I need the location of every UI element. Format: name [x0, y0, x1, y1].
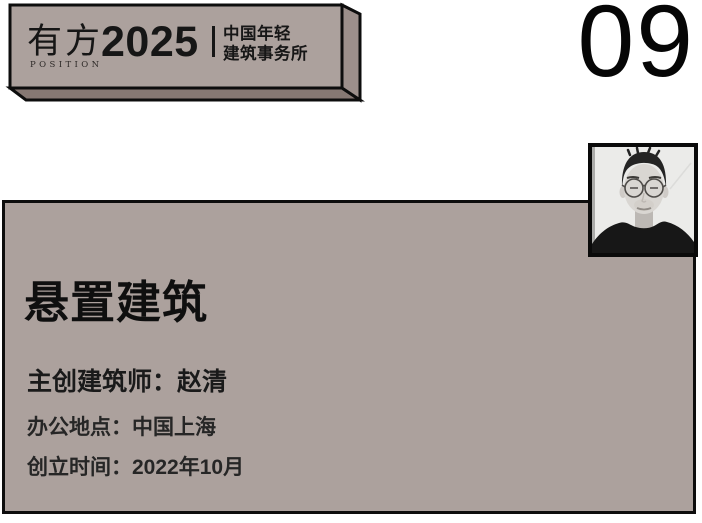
index-number: 09 — [578, 0, 695, 92]
page: 有方 POSITION 2025 中国年轻 建筑事务所 09 悬置建筑 主创建筑… — [0, 0, 702, 523]
portrait-photo — [588, 143, 698, 257]
studio-name-title: 悬置建筑 — [24, 280, 208, 326]
founded-line: 创立时间：2022年10月 — [27, 457, 244, 479]
banner-tagline: 中国年轻 建筑事务所 — [223, 25, 308, 64]
tagline-line2: 建筑事务所 — [223, 45, 308, 65]
portrait-illustration — [592, 147, 694, 253]
banner-divider — [212, 26, 215, 57]
banner-3d-box: 有方 POSITION 2025 中国年轻 建筑事务所 — [0, 0, 366, 106]
photo-left-shadow — [592, 147, 595, 253]
location-line: 办公地点：中国上海 — [27, 417, 216, 439]
banner-right-face — [342, 5, 360, 100]
brand-sub-label: POSITION — [30, 61, 103, 70]
tagline-line1: 中国年轻 — [223, 25, 308, 45]
year-label: 2025 — [101, 21, 199, 64]
right-eyebrow — [649, 177, 661, 178]
banner-bottom-face — [10, 88, 360, 100]
brand-logo: 有方 — [27, 23, 103, 61]
architect-line: 主创建筑师：赵清 — [27, 369, 227, 395]
left-eyebrow — [627, 177, 639, 178]
